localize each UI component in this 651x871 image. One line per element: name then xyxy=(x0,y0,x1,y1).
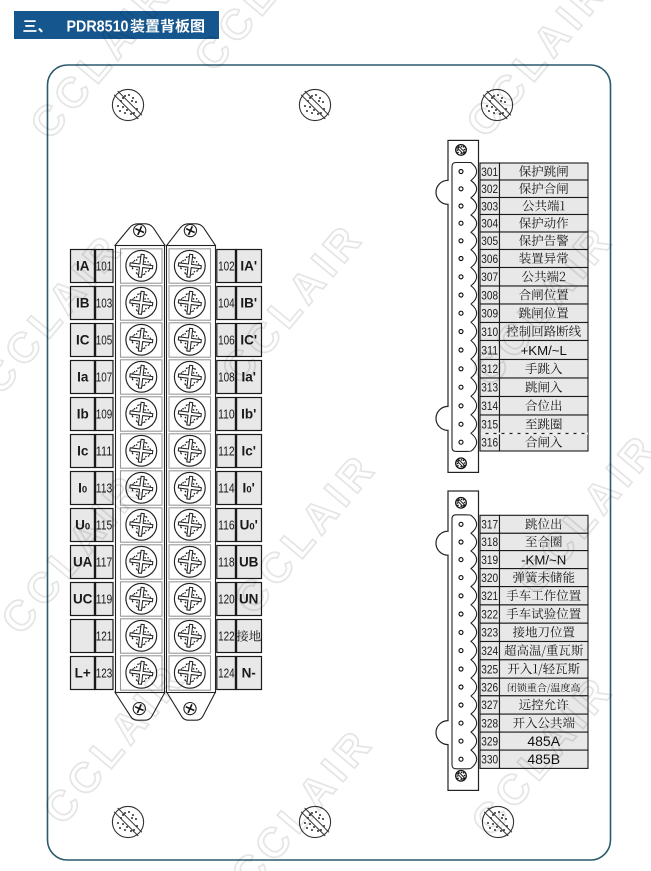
svg-text:329: 329 xyxy=(481,734,498,748)
svg-text:318: 318 xyxy=(481,535,498,549)
svg-text:309: 309 xyxy=(481,307,498,321)
svg-text:111: 111 xyxy=(96,445,113,459)
svg-text:320: 320 xyxy=(481,571,498,585)
svg-text:Ic': Ic' xyxy=(241,444,255,459)
svg-text:322: 322 xyxy=(481,607,498,621)
svg-text:330: 330 xyxy=(481,753,498,767)
svg-text:122: 122 xyxy=(218,630,235,644)
svg-text:121: 121 xyxy=(96,630,113,644)
svg-text:Ic: Ic xyxy=(77,444,89,459)
svg-text:Ib: Ib xyxy=(77,407,89,422)
svg-text:Ib': Ib' xyxy=(241,407,256,422)
svg-text:305: 305 xyxy=(481,234,498,248)
svg-text:123: 123 xyxy=(96,667,113,681)
svg-text:L+: L+ xyxy=(75,666,91,681)
svg-text:307: 307 xyxy=(481,270,498,284)
svg-text:107: 107 xyxy=(96,371,113,385)
svg-text:U0': U0' xyxy=(240,518,258,533)
svg-text:109: 109 xyxy=(96,408,113,422)
svg-text:112: 112 xyxy=(218,445,235,459)
svg-text:328: 328 xyxy=(481,716,498,730)
svg-text:304: 304 xyxy=(481,217,498,231)
svg-text:301: 301 xyxy=(481,165,498,179)
svg-text:314: 314 xyxy=(481,399,498,413)
svg-text:118: 118 xyxy=(218,556,235,570)
svg-text:Ia: Ia xyxy=(77,370,89,385)
svg-text:325: 325 xyxy=(481,662,498,676)
svg-text:IB': IB' xyxy=(240,296,257,311)
svg-text:114: 114 xyxy=(218,482,235,496)
svg-text:308: 308 xyxy=(481,288,498,302)
svg-text:316: 316 xyxy=(481,436,498,450)
svg-text:306: 306 xyxy=(481,252,498,266)
svg-text:N-: N- xyxy=(242,666,256,681)
svg-text:110: 110 xyxy=(218,408,235,422)
svg-text:302: 302 xyxy=(481,182,498,196)
svg-text:327: 327 xyxy=(481,698,498,712)
svg-text:323: 323 xyxy=(481,626,498,640)
svg-text:116: 116 xyxy=(218,519,235,533)
svg-text:104: 104 xyxy=(218,297,235,311)
svg-text:315: 315 xyxy=(481,418,498,432)
svg-text:UC: UC xyxy=(73,592,93,607)
svg-text:119: 119 xyxy=(96,593,113,607)
svg-text:317: 317 xyxy=(481,518,498,532)
svg-text:102: 102 xyxy=(218,260,235,274)
svg-text:103: 103 xyxy=(96,297,113,311)
svg-text:319: 319 xyxy=(481,553,498,567)
svg-text:105: 105 xyxy=(96,334,113,348)
svg-text:124: 124 xyxy=(218,667,235,681)
svg-text:321: 321 xyxy=(481,589,498,603)
svg-text:IA': IA' xyxy=(240,259,257,274)
svg-text:326: 326 xyxy=(481,680,498,694)
svg-text:303: 303 xyxy=(481,199,498,213)
svg-text:324: 324 xyxy=(481,644,498,658)
svg-text:IC: IC xyxy=(76,333,90,348)
